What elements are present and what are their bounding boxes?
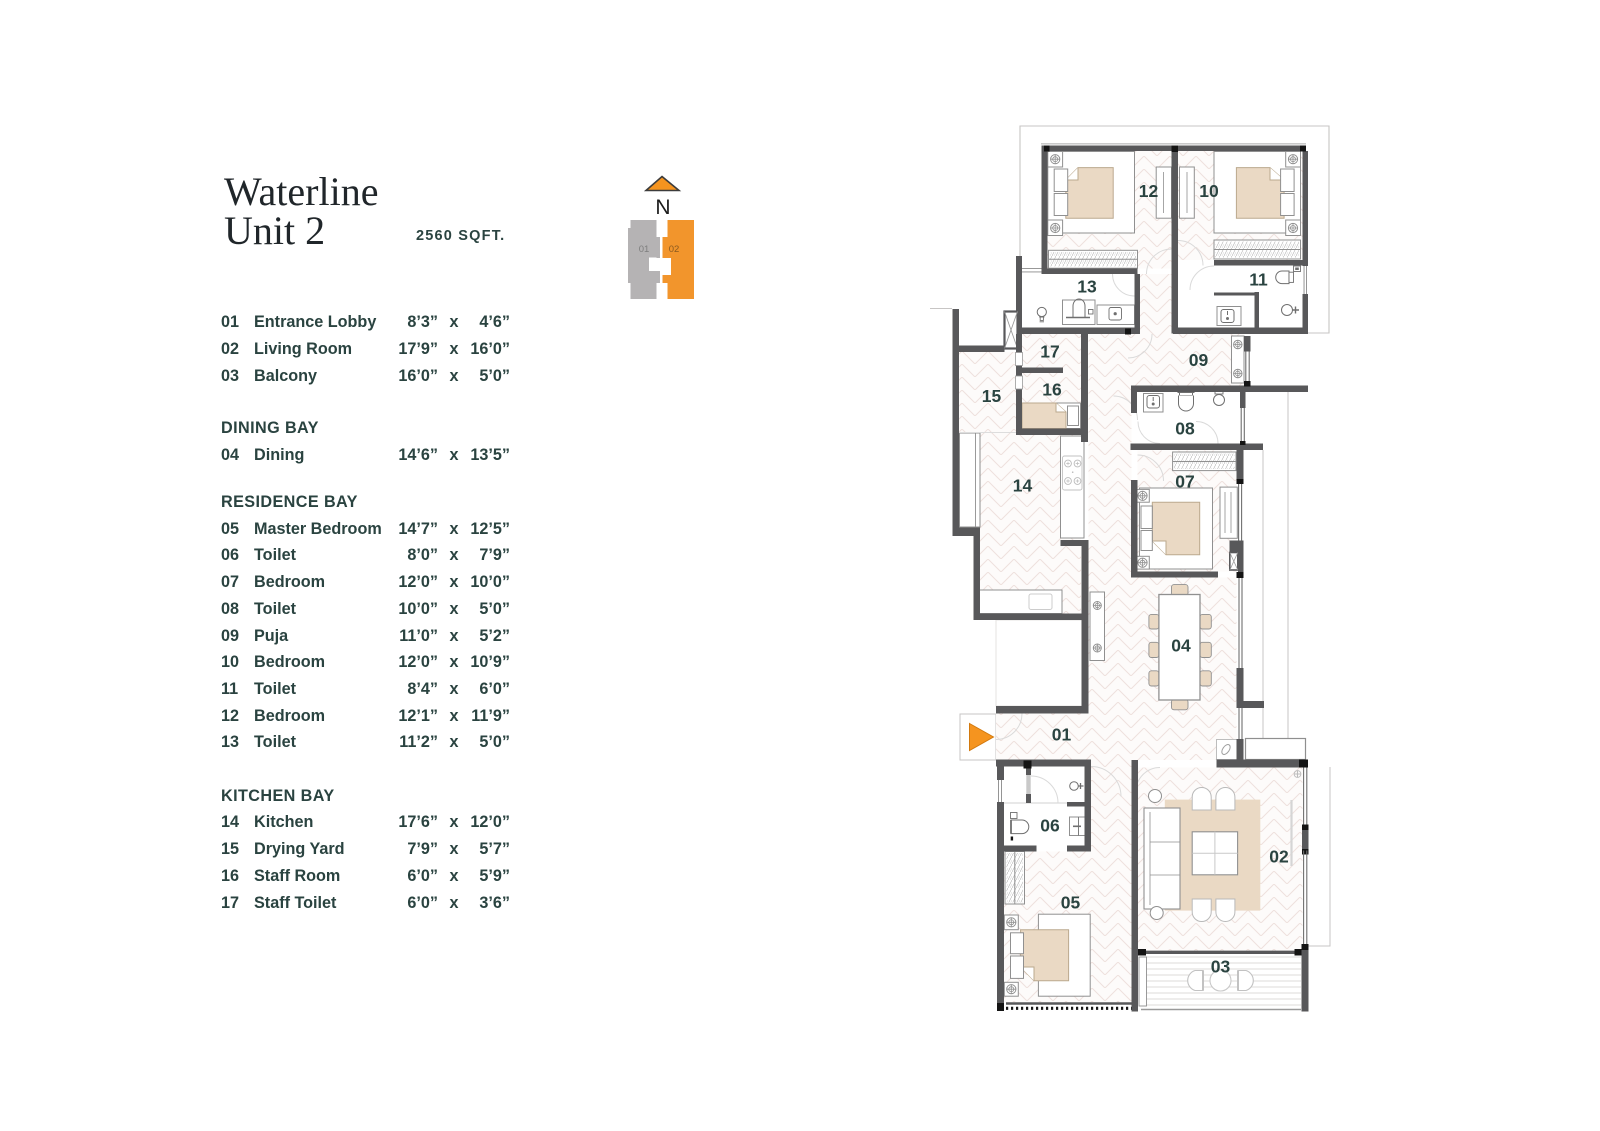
svg-text:N: N <box>655 196 670 219</box>
svg-text:08: 08 <box>1175 419 1195 439</box>
svg-text:12: 12 <box>1139 181 1159 201</box>
svg-text:04: 04 <box>1171 636 1191 656</box>
svg-text:02: 02 <box>1269 847 1289 867</box>
svg-text:11: 11 <box>1249 270 1268 290</box>
svg-text:13: 13 <box>1077 277 1097 297</box>
svg-text:07: 07 <box>1175 472 1194 492</box>
svg-text:05: 05 <box>1061 893 1081 913</box>
svg-text:03: 03 <box>1211 957 1231 977</box>
svg-text:10: 10 <box>1199 181 1219 201</box>
svg-text:06: 06 <box>1040 816 1060 836</box>
svg-text:16: 16 <box>1042 380 1062 400</box>
svg-text:01: 01 <box>1052 725 1072 745</box>
svg-text:17: 17 <box>1040 342 1059 362</box>
svg-text:09: 09 <box>1189 350 1209 370</box>
svg-text:14: 14 <box>1013 476 1033 496</box>
svg-text:01: 01 <box>639 244 650 255</box>
svg-text:15: 15 <box>982 386 1002 406</box>
svg-text:02: 02 <box>669 244 680 255</box>
